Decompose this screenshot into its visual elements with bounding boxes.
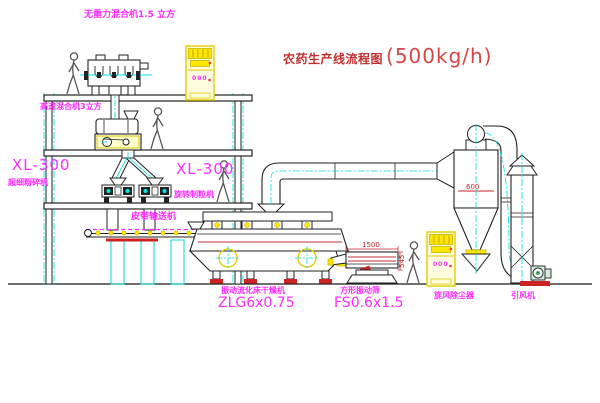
dimension-cyclone: 600 [466, 183, 479, 191]
belt-conveyor [85, 230, 205, 285]
control-cabinet-1 [186, 46, 214, 100]
label-xl300-right-model: XL-300 [176, 162, 234, 177]
cabinet2-display: 000 [433, 261, 449, 268]
person-figure-floor2 [151, 108, 163, 149]
person-figure-ground [407, 242, 419, 283]
label-gravity-free-mixer: 无重力混合机1.5 立方 [84, 11, 175, 20]
label-cyclone: 旋风除尘器 [434, 292, 474, 300]
label-xl300-left-model: XL-300 [12, 158, 70, 173]
control-cabinet-2 [427, 232, 455, 286]
fluid-bed-dryer [188, 212, 348, 284]
process-flow-diagram: 农药生产线流程图 (500kg/h) 无重力混合机1.5 立方 高速混合机3立方… [0, 0, 600, 403]
cabinet1-display: 000 [192, 75, 208, 82]
xl300-unit-left [102, 178, 134, 203]
gravity-free-mixer [80, 55, 152, 121]
diagram-title: 农药生产线流程图 (500kg/h) [283, 44, 493, 68]
label-screen-model: FS0.6x1.5 [334, 296, 404, 310]
label-high-speed-mixer: 高速混合机3立方 [40, 103, 102, 111]
diagram-title-text: 农药生产线流程图 [283, 50, 383, 67]
label-xl300-left-name: 超细粉碎机 [8, 179, 48, 187]
dimension-screen-length: 1500 [362, 241, 380, 249]
label-belt-conveyor: 皮带输送机 [131, 213, 176, 222]
dryer-exhaust-pipe [258, 163, 437, 212]
person-figure-roof [67, 53, 79, 94]
xl300-unit-right [139, 178, 171, 203]
label-xl300-right-name: 旋转制粒机 [174, 191, 214, 199]
label-dryer-name: 振动流化床干燥机 [221, 287, 285, 295]
dimension-screen-height: 545 [398, 255, 406, 268]
label-screen-name: 方形振动筛 [340, 287, 380, 295]
diagram-title-capacity: (500kg/h) [386, 44, 492, 68]
label-fan: 引风机 [511, 292, 535, 300]
label-dryer-model: ZLG6x0.75 [218, 296, 295, 310]
